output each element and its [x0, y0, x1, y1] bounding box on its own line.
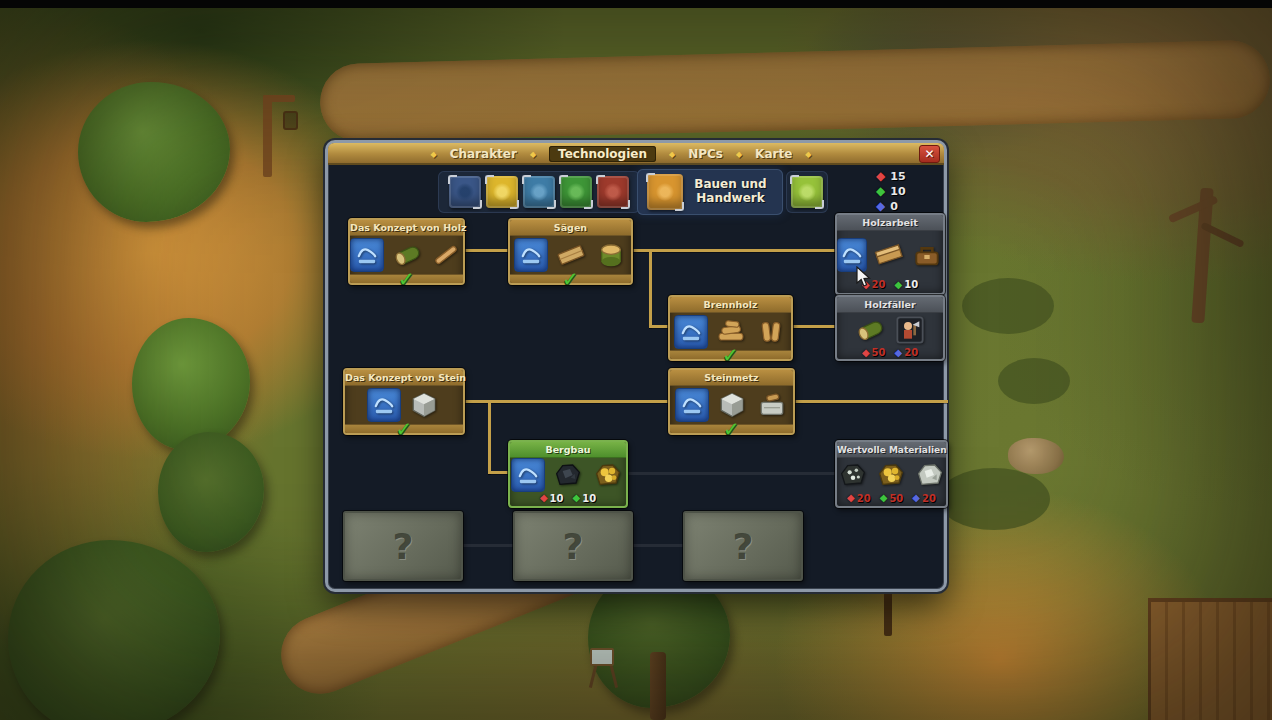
green-gem-icon: ◆ — [895, 280, 903, 290]
easel-board — [590, 648, 614, 666]
green-points-value: 10 — [890, 185, 905, 198]
tech-category-group — [438, 171, 640, 213]
diamond-separator-icon: ◆ — [805, 150, 811, 159]
blueprint-icon — [350, 238, 384, 272]
tech-node-title: Das Konzept von Holz — [350, 220, 463, 236]
game-screen: ◆ Charakter ◆ Technologien ◆ NPCs ◆ Kart… — [0, 0, 1272, 720]
tech-node-unknown[interactable]: ? — [513, 511, 633, 581]
tech-node-holzfaeller[interactable]: Holzfäller ◆50 ◆20 — [835, 295, 945, 361]
technology-window: ◆ Charakter ◆ Technologien ◆ NPCs ◆ Kart… — [325, 140, 947, 592]
coal-ore-icon — [551, 458, 585, 492]
question-mark-icon: ? — [563, 526, 584, 567]
tech-node-title: Bergbau — [510, 442, 626, 458]
cost-row: ◆20 ◆50 ◆20 — [837, 492, 946, 506]
cost-value: 20 — [857, 493, 871, 504]
background-rock — [1008, 438, 1064, 474]
tech-node-unknown[interactable]: ? — [343, 511, 463, 581]
toolbox-icon — [911, 238, 943, 272]
green-points-row: ◆ 10 — [876, 184, 906, 198]
tech-link — [465, 400, 668, 403]
tech-node-wertvolle-materialien[interactable]: Wertvolle Materialien ◆20 ◆50 ◆20 — [835, 440, 948, 508]
tech-link-locked — [628, 472, 835, 475]
silver-ore-icon — [837, 458, 869, 492]
question-mark-icon: ? — [393, 526, 414, 567]
tech-link — [793, 325, 835, 328]
selected-category-label: Bauen und Handwerk — [688, 178, 774, 206]
tech-node-das-konzept-von-holz[interactable]: Das Konzept von Holz ✓ — [348, 218, 465, 285]
diamond-separator-icon: ◆ — [736, 150, 742, 159]
cost-value: 20 — [872, 279, 886, 290]
background-tree — [8, 540, 220, 720]
diamond-separator-icon: ◆ — [431, 150, 437, 159]
researched-check-icon: ✓ — [722, 343, 739, 367]
tab-bar: ◆ Charakter ◆ Technologien ◆ NPCs ◆ Kart… — [328, 143, 914, 165]
red-points-row: ◆ 15 — [876, 169, 906, 183]
blue-gem-icon: ◆ — [895, 348, 903, 358]
tech-link — [795, 400, 948, 403]
writing-book-icon[interactable] — [523, 176, 555, 208]
tech-link-locked — [463, 544, 513, 547]
tech-points-panel: ◆ 15 ◆ 10 ◆ 0 — [876, 169, 906, 213]
cost-row: ◆10 ◆10 — [510, 492, 626, 506]
billets-icon — [754, 315, 788, 349]
wooden-dock — [1148, 598, 1272, 720]
tab-npcs[interactable]: NPCs — [688, 147, 723, 161]
tab-charakter[interactable]: Charakter — [450, 147, 517, 161]
blueprint-icon — [675, 388, 709, 422]
tech-node-title: Das Konzept von Stein — [345, 370, 463, 386]
blue-points-row: ◆ 0 — [876, 199, 906, 213]
selected-category-group: Bauen und Handwerk — [637, 169, 783, 215]
tab-technologien[interactable]: Technologien — [549, 146, 656, 162]
tech-node-title: Steinmetz — [670, 370, 793, 386]
nature-book-icon[interactable] — [560, 176, 592, 208]
blueprint-icon — [514, 238, 548, 272]
cost-row: ◆20 ◆10 — [837, 278, 943, 293]
cost-value: 10 — [904, 279, 918, 290]
tech-node-holzarbeit[interactable]: Holzarbeit ◆20 ◆10 — [835, 213, 945, 295]
red-gem-icon: ◆ — [540, 493, 548, 503]
tech-link — [649, 249, 652, 328]
window-titlebar: ◆ Charakter ◆ Technologien ◆ NPCs ◆ Kart… — [328, 143, 944, 165]
tech-category-group — [786, 171, 828, 213]
red-gem-icon: ◆ — [876, 170, 885, 182]
blueprint-icon — [674, 315, 708, 349]
blue-gem-icon: ◆ — [912, 493, 920, 503]
tech-node-bergbau[interactable]: Bergbau ◆10 ◆10 — [508, 440, 628, 508]
cost-value: 20 — [904, 347, 918, 358]
billet-icon — [594, 238, 628, 272]
tech-link — [465, 249, 508, 252]
hanging-post — [263, 95, 272, 177]
tech-node-brennholz[interactable]: Brennholz ✓ — [668, 295, 793, 361]
cost-value: 20 — [922, 493, 936, 504]
red-gem-icon: ◆ — [847, 493, 855, 503]
tech-node-steinmetz[interactable]: Steinmetz ✓ — [668, 368, 795, 435]
green-gem-icon: ◆ — [880, 493, 888, 503]
blueprint-icon — [511, 458, 545, 492]
close-button[interactable]: ✕ — [919, 145, 940, 163]
cooking-book-icon[interactable] — [597, 176, 629, 208]
smithing-book-icon[interactable] — [791, 176, 823, 208]
tech-node-saegen[interactable]: Sägen ✓ — [508, 218, 633, 285]
gold-ore-icon — [591, 458, 625, 492]
building-crafting-book-icon[interactable] — [647, 174, 683, 210]
tech-node-unknown[interactable]: ? — [683, 511, 803, 581]
grass-patch — [962, 278, 1054, 334]
red-gem-icon: ◆ — [862, 348, 870, 358]
blue-gem-icon: ◆ — [876, 200, 885, 212]
tech-node-title: Holzfäller — [837, 297, 943, 313]
grass-patch — [938, 468, 1050, 530]
green-gem-icon: ◆ — [876, 185, 885, 197]
cost-value: 50 — [889, 493, 903, 504]
gold-ore-icon — [875, 458, 907, 492]
researched-check-icon: ✓ — [398, 267, 415, 291]
alchemy-book-icon[interactable] — [486, 176, 518, 208]
npc-portrait-icon — [893, 313, 927, 347]
tech-link — [649, 325, 668, 328]
tech-node-title: Wertvolle Materialien — [837, 442, 946, 458]
white-ore-icon — [914, 458, 946, 492]
cost-value: 10 — [582, 493, 596, 504]
mouse-cursor-icon — [856, 266, 872, 288]
tech-node-title: Brennholz — [670, 297, 791, 313]
blue-points-value: 0 — [890, 200, 898, 213]
log-icon — [853, 313, 887, 347]
tab-karte[interactable]: Karte — [755, 147, 792, 161]
stick-icon — [429, 238, 463, 272]
researched-check-icon: ✓ — [723, 417, 740, 441]
tech-node-das-konzept-von-stein[interactable]: Das Konzept von Stein ✓ — [343, 368, 465, 435]
tech-link — [488, 400, 491, 474]
chisel-icon — [755, 388, 789, 422]
tech-link-locked — [633, 544, 683, 547]
diamond-separator-icon: ◆ — [530, 150, 536, 159]
tech-node-title: Sägen — [510, 220, 631, 236]
green-gem-icon: ◆ — [573, 493, 581, 503]
cost-value: 50 — [872, 347, 886, 358]
tree-trunk — [650, 652, 666, 720]
tech-node-title: Holzarbeit — [837, 215, 943, 231]
cost-value: 10 — [550, 493, 564, 504]
researched-check-icon: ✓ — [562, 267, 579, 291]
researched-check-icon: ✓ — [396, 417, 413, 441]
beam-icon — [873, 238, 905, 272]
question-mark-icon: ? — [733, 526, 754, 567]
cost-row: ◆50 ◆20 — [837, 347, 943, 360]
letterbox-bar — [0, 0, 1272, 8]
diamond-separator-icon: ◆ — [669, 150, 675, 159]
red-points-value: 15 — [890, 170, 905, 183]
tech-link — [488, 471, 508, 474]
tech-link — [633, 249, 835, 252]
theology-book-icon[interactable] — [449, 176, 481, 208]
grass-patch — [998, 358, 1070, 404]
hanging-cage — [283, 111, 298, 130]
